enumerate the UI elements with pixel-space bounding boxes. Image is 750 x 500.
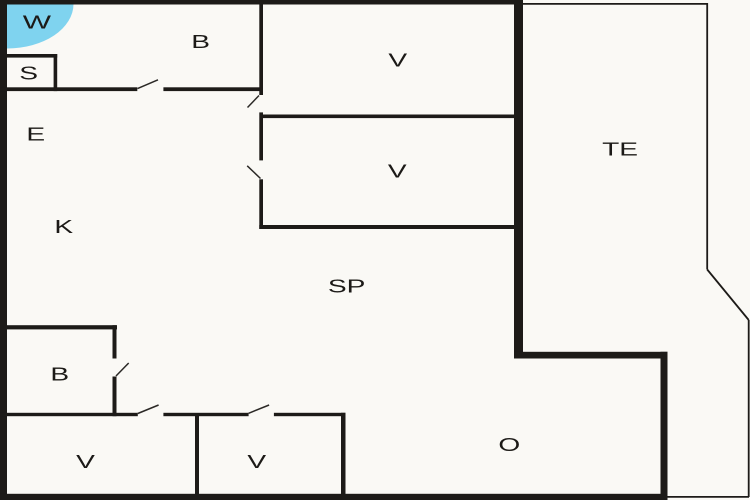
svg-text:V: V <box>388 161 407 182</box>
svg-text:V: V <box>388 50 407 71</box>
svg-text:B: B <box>50 364 69 385</box>
svg-text:K: K <box>54 216 73 237</box>
svg-text:TE: TE <box>602 139 638 160</box>
svg-text:V: V <box>76 451 95 472</box>
svg-text:V: V <box>247 451 266 472</box>
svg-text:E: E <box>26 124 45 145</box>
svg-text:O: O <box>498 435 520 456</box>
svg-text:S: S <box>19 63 38 84</box>
svg-text:B: B <box>191 32 210 53</box>
svg-text:W: W <box>23 12 52 33</box>
svg-text:SP: SP <box>328 276 366 297</box>
